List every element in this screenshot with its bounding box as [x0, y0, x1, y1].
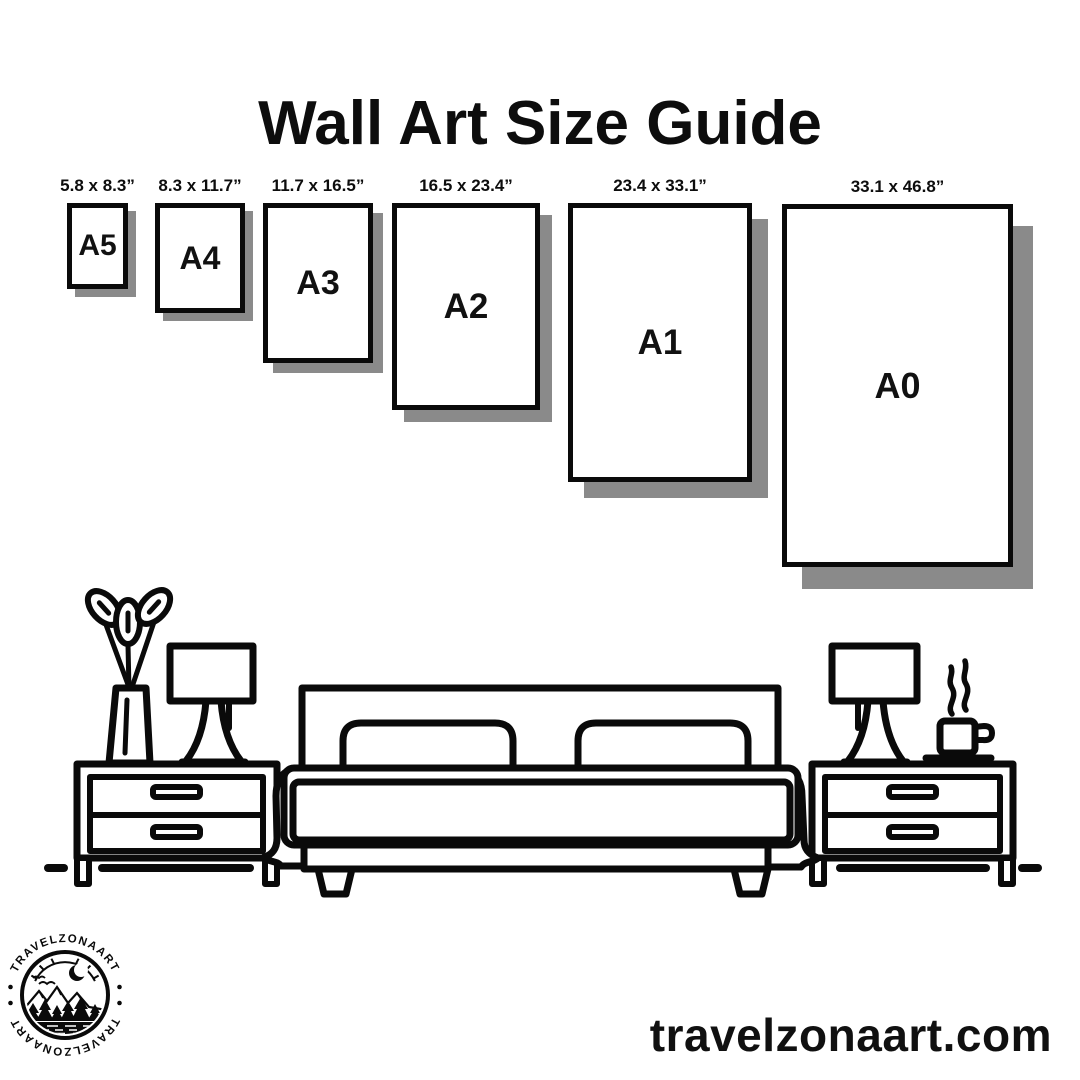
bedroom-illustration — [0, 0, 1080, 1080]
moon-icon — [69, 963, 88, 981]
mountains-icon — [23, 987, 106, 1010]
bed-base — [304, 845, 768, 894]
brand-logo: TRAVELZONAART TRAVELZONAART — [5, 931, 125, 1061]
website-url: travelzonaart.com — [650, 1008, 1052, 1062]
size-guide-infographic: Wall Art Size Guide 5.8 x 8.3” A5 8.3 x … — [0, 0, 1080, 1080]
logo-inner-arc — [31, 959, 98, 981]
plant-vase-icon — [82, 584, 177, 763]
table-lamp-icon — [170, 646, 253, 762]
table-lamp-icon — [832, 646, 917, 762]
logo-separator-dots — [8, 985, 122, 1006]
coffee-cup-icon — [926, 661, 992, 758]
bed-mattress — [284, 768, 798, 845]
